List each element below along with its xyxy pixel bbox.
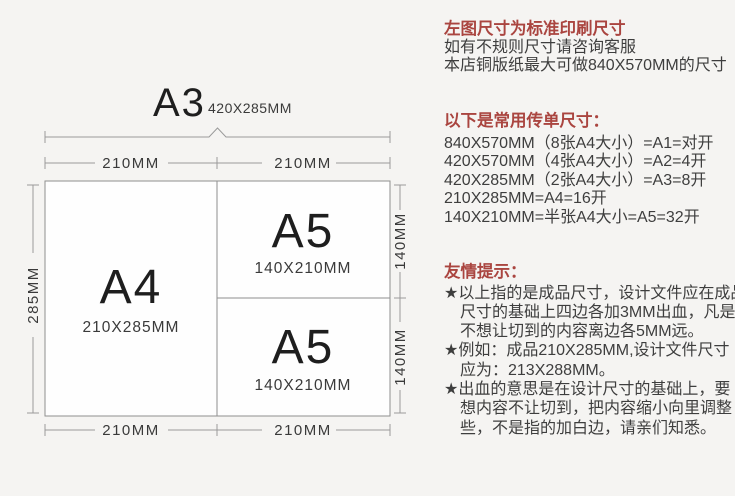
dim-left: 285MM: [25, 266, 42, 324]
common-sizes-section: 以下是常用传单尺寸： 840X570MM（8张A4大小）=A1=对开 420X5…: [444, 112, 713, 227]
a4-label: A4: [100, 261, 163, 314]
tip-line: 想内容不让切到，把内容缩小向里调整: [444, 399, 735, 418]
size-line: 840X570MM（8张A4大小）=A1=对开: [444, 135, 713, 154]
dim-right-top: 140MM: [392, 212, 409, 270]
tip-line: 不想让切到的内容离边各5MM远。: [444, 322, 735, 341]
tips-title: 友情提示：: [444, 263, 735, 282]
tip-line: 应为：213X288MM。: [444, 361, 735, 380]
a3-label: A3: [153, 81, 206, 125]
a5-bottom-size-label: 140X210MM: [255, 377, 352, 394]
top-dimension-line: [45, 157, 390, 169]
dim-bottom-right: 210MM: [274, 422, 332, 439]
tip-line: ★例如：成品210X285MM,设计文件尺寸: [444, 341, 735, 360]
intro-line: 本店铜版纸最大可做840X570MM的尺寸: [444, 57, 727, 76]
dim-top-right: 210MM: [274, 155, 332, 172]
tip-line: 尺寸的基础上四边各加3MM出血，凡是: [444, 303, 735, 322]
a3-size-label: 420X285MM: [208, 100, 292, 116]
a5-top-label: A5: [272, 205, 335, 258]
intro-line: 如有不规则尺寸请咨询客服: [444, 39, 727, 58]
a5-top-size-label: 140X210MM: [255, 260, 352, 277]
intro-title: 左图尺寸为标准印刷尺寸: [444, 20, 727, 39]
size-line: 140X210MM=半张A4大小=A5=32开: [444, 209, 713, 228]
tip-line: ★出血的意思是在设计尺寸的基础上，要: [444, 380, 735, 399]
bottom-dimension-line: [45, 424, 390, 436]
dim-bottom-left: 210MM: [102, 422, 160, 439]
tip-line: 些，不是指的加白边，请亲们知悉。: [444, 419, 735, 438]
size-line: 420X570MM（4张A4大小）=A2=4开: [444, 153, 713, 172]
dim-top-left: 210MM: [102, 155, 160, 172]
common-sizes-title: 以下是常用传单尺寸：: [444, 112, 713, 131]
size-line: 210X285MM=A4=16开: [444, 190, 713, 209]
dim-right-bottom: 140MM: [392, 328, 409, 386]
intro-section: 左图尺寸为标准印刷尺寸 如有不规则尺寸请咨询客服 本店铜版纸最大可做840X57…: [444, 20, 727, 76]
a4-size-label: 210X285MM: [83, 319, 180, 336]
size-line: 420X285MM（2张A4大小）=A3=8开: [444, 172, 713, 191]
paper-size-infographic: A3 420X285MM 210MM 210MM A4 210X285MM A5…: [0, 0, 735, 496]
tip-line: ★以上指的是成品尺寸，设计文件应在成品: [444, 284, 735, 303]
a3-width-bracket: [45, 128, 390, 143]
paper-size-diagram: A3 420X285MM 210MM 210MM A4 210X285MM A5…: [0, 0, 430, 496]
a5-bottom-label: A5: [272, 321, 335, 374]
tips-section: 友情提示： ★以上指的是成品尺寸，设计文件应在成品 尺寸的基础上四边各加3MM出…: [444, 263, 735, 438]
